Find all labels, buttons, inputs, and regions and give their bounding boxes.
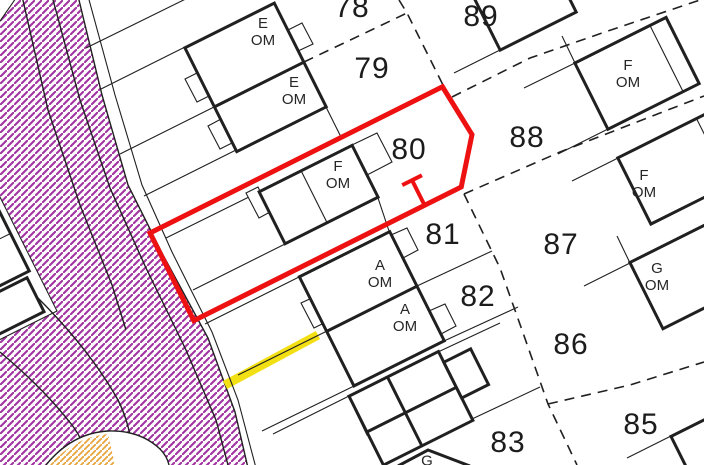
building-f-80 — [259, 145, 378, 243]
building-89 — [470, 0, 576, 50]
building-f-right — [618, 113, 704, 224]
building-g-right — [630, 218, 704, 329]
building-f-top-right — [575, 17, 699, 129]
boundary-t-mark — [412, 180, 425, 206]
building-85 — [671, 398, 704, 465]
title-plan-map: 7879808182838586878889EOMEOMFOMAOMAOMFOM… — [0, 0, 704, 465]
map-canvas — [0, 0, 704, 465]
building-e-pair — [185, 3, 326, 151]
